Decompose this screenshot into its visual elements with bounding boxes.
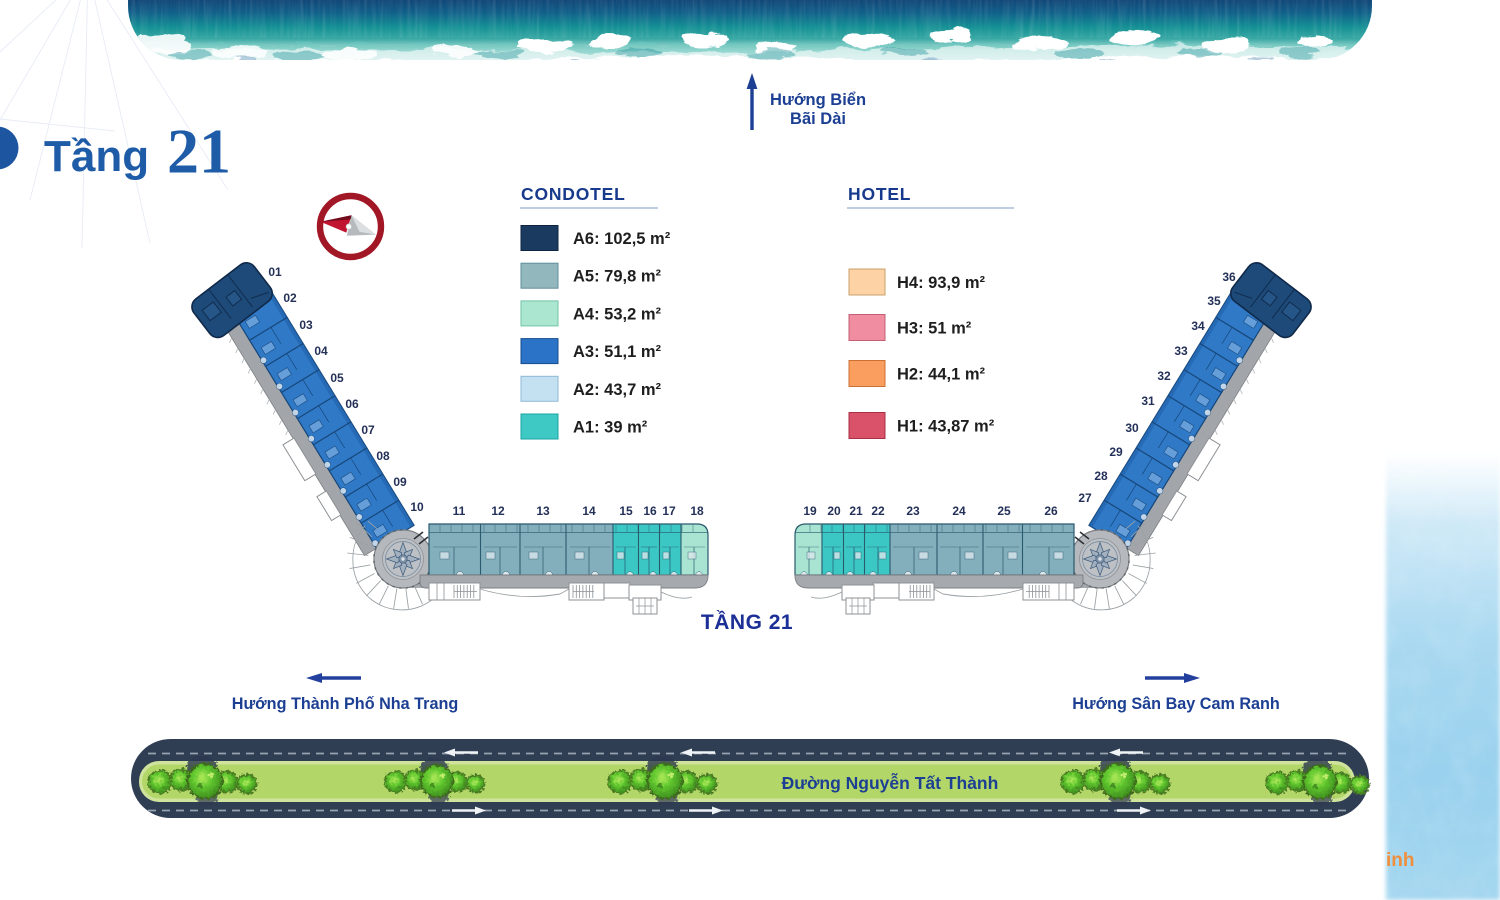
svg-text:15: 15	[619, 504, 633, 518]
svg-text:35: 35	[1207, 294, 1221, 308]
svg-text:27: 27	[1078, 491, 1092, 505]
svg-text:04: 04	[314, 344, 328, 358]
svg-text:inh: inh	[1386, 850, 1415, 871]
svg-text:A1: 39 m²: A1: 39 m²	[573, 419, 648, 437]
svg-text:33: 33	[1174, 344, 1188, 358]
svg-text:H2: 44,1 m²: H2: 44,1 m²	[897, 366, 986, 384]
svg-text:22: 22	[871, 504, 885, 518]
svg-text:09: 09	[393, 475, 407, 489]
svg-text:01: 01	[268, 265, 282, 279]
svg-text:14: 14	[582, 504, 596, 518]
svg-text:Hướng Biển: Hướng Biển	[770, 91, 866, 109]
svg-text:A2: 43,7 m²: A2: 43,7 m²	[573, 381, 662, 399]
svg-text:34: 34	[1191, 319, 1205, 333]
svg-text:TẦNG 21: TẦNG 21	[701, 611, 793, 634]
svg-text:18: 18	[690, 504, 704, 518]
svg-text:25: 25	[997, 504, 1011, 518]
svg-text:31: 31	[1141, 394, 1155, 408]
svg-text:06: 06	[345, 397, 359, 411]
svg-text:CONDOTEL: CONDOTEL	[521, 184, 626, 204]
svg-text:30: 30	[1125, 421, 1139, 435]
svg-text:A5: 79,8 m²: A5: 79,8 m²	[573, 268, 662, 286]
svg-text:05: 05	[330, 371, 344, 385]
svg-text:24: 24	[952, 504, 966, 518]
svg-text:32: 32	[1157, 369, 1171, 383]
svg-text:21: 21	[849, 504, 863, 518]
svg-text:23: 23	[906, 504, 920, 518]
svg-text:16: 16	[643, 504, 657, 518]
svg-text:HOTEL: HOTEL	[848, 184, 911, 204]
svg-text:17: 17	[662, 504, 676, 518]
svg-text:Hướng Sân Bay Cam Ranh: Hướng Sân Bay Cam Ranh	[1072, 695, 1280, 713]
svg-text:03: 03	[299, 318, 313, 332]
svg-text:H1: 43,87 m²: H1: 43,87 m²	[897, 418, 995, 436]
svg-text:H4: 93,9 m²: H4: 93,9 m²	[897, 274, 986, 292]
svg-text:07: 07	[361, 423, 375, 437]
svg-text:36: 36	[1222, 270, 1236, 284]
svg-text:A4: 53,2 m²: A4: 53,2 m²	[573, 305, 662, 323]
svg-text:20: 20	[827, 504, 841, 518]
svg-text:29: 29	[1109, 445, 1123, 459]
svg-text:A3: 51,1 m²: A3: 51,1 m²	[573, 343, 662, 361]
svg-text:08: 08	[376, 449, 390, 463]
svg-text:H3: 51 m²: H3: 51 m²	[897, 320, 972, 338]
svg-text:21: 21	[167, 116, 231, 187]
svg-text:Hướng Thành Phố Nha Trang: Hướng Thành Phố Nha Trang	[232, 695, 458, 713]
svg-text:10: 10	[410, 500, 424, 514]
svg-text:26: 26	[1044, 504, 1058, 518]
svg-text:19: 19	[803, 504, 817, 518]
svg-text:Bãi Dài: Bãi Dài	[790, 110, 846, 128]
svg-text:11: 11	[453, 504, 466, 518]
svg-text:13: 13	[536, 504, 550, 518]
svg-text:28: 28	[1094, 469, 1108, 483]
svg-text:Tầng: Tầng	[44, 132, 149, 181]
svg-text:12: 12	[491, 504, 505, 518]
svg-text:Đường Nguyễn Tất Thành: Đường Nguyễn Tất Thành	[782, 772, 999, 793]
svg-text:A6: 102,5 m²: A6: 102,5 m²	[573, 230, 671, 248]
svg-text:02: 02	[283, 291, 297, 305]
